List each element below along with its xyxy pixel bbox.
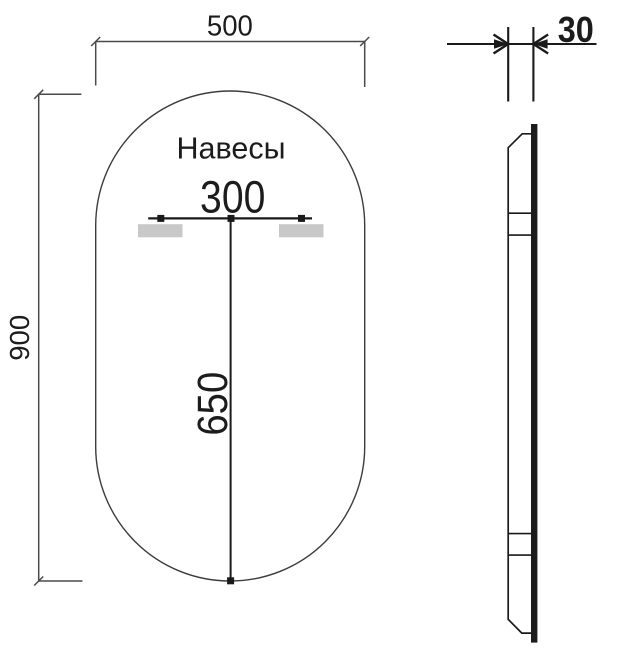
svg-text:Навесы: Навесы [177, 132, 286, 166]
svg-text:900: 900 [4, 315, 35, 361]
svg-text:300: 300 [200, 172, 265, 222]
svg-text:650: 650 [188, 372, 237, 436]
svg-text:500: 500 [207, 9, 253, 42]
svg-text:30: 30 [558, 10, 594, 50]
